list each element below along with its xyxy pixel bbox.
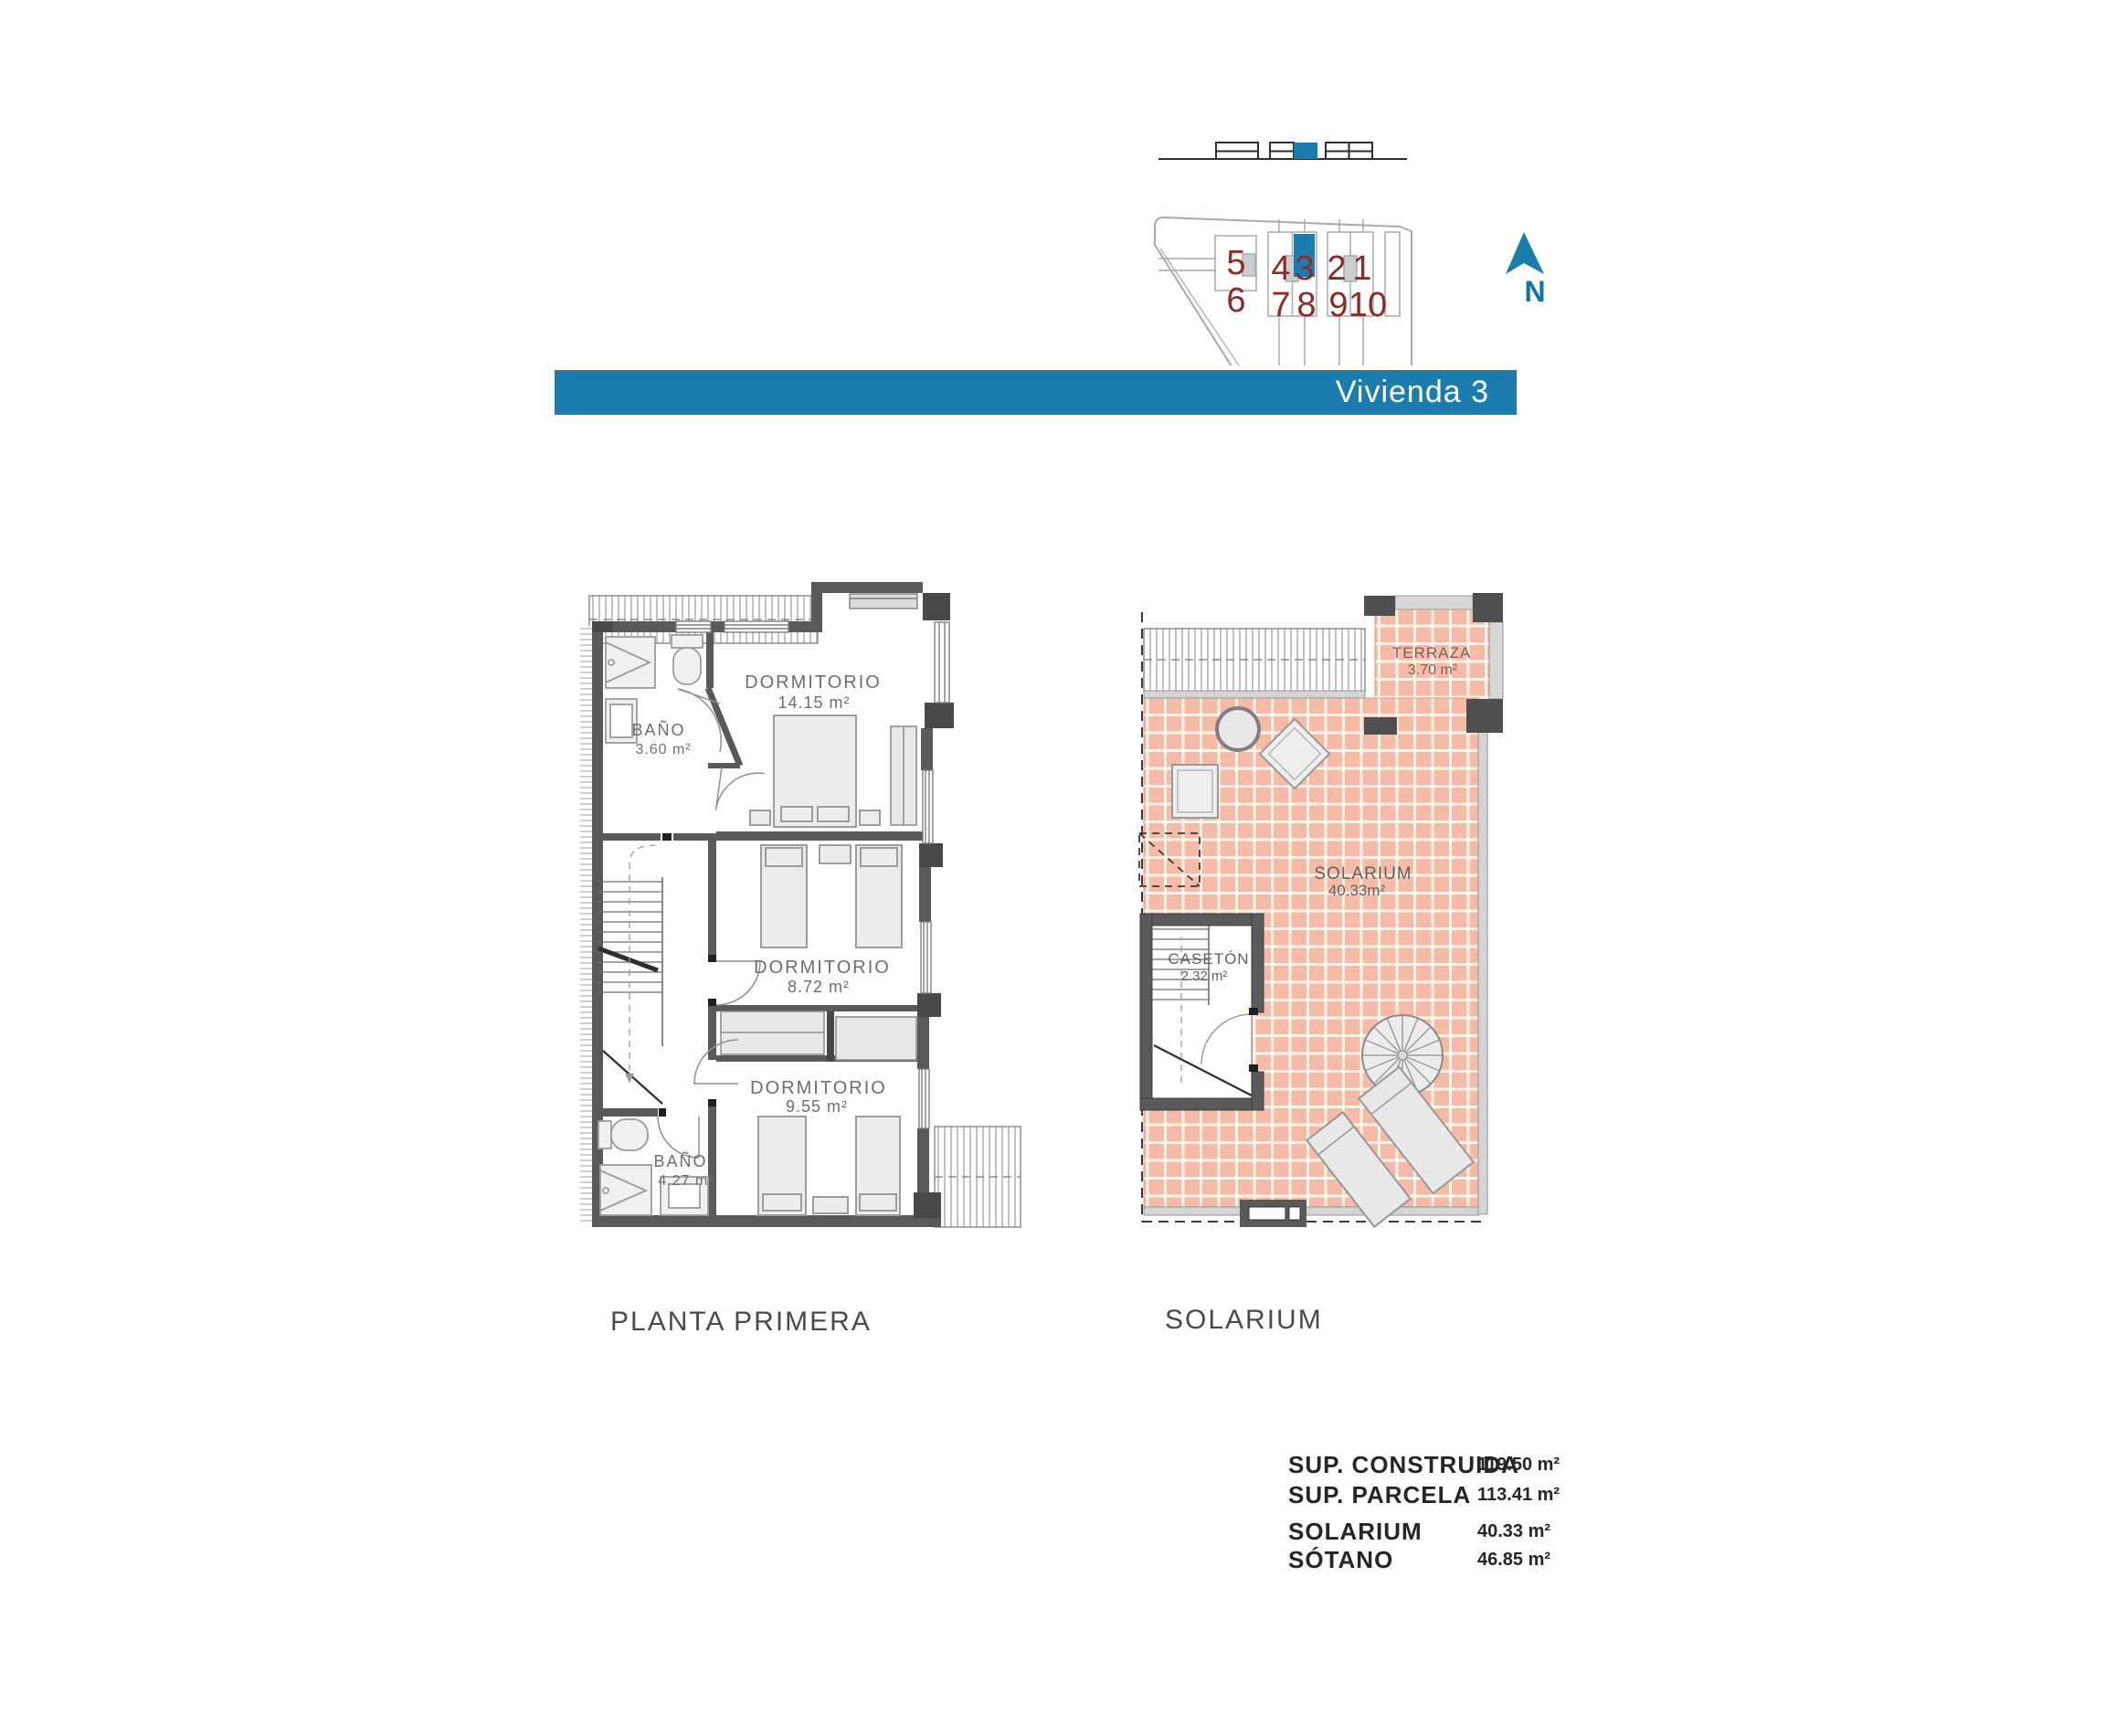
- twin-beds-872: [761, 845, 902, 947]
- sheet-title: Vivienda 3: [1336, 375, 1517, 410]
- room-name: DORMITORIO: [754, 958, 891, 978]
- planta-primera-plan: BAÑO 3.60 m² DORMITORIO 14.15 m² DORMITO…: [571, 571, 1119, 1243]
- unit-number: 4: [1271, 249, 1290, 288]
- room-area: 14.15 m²: [777, 693, 850, 712]
- unit-number: 8: [1296, 286, 1316, 324]
- summary-row-label: SOLARIUM: [1288, 1518, 1423, 1546]
- unit-number: 6: [1226, 281, 1245, 320]
- room-area: 40.33m²: [1328, 882, 1386, 899]
- north-label: N: [1524, 275, 1545, 308]
- caseton: [1140, 914, 1264, 1110]
- room-name: BAÑO: [653, 1151, 707, 1170]
- staircase: [597, 845, 662, 1104]
- caption-solarium: SOLARIUM: [1165, 1305, 1323, 1336]
- room-name: DORMITORIO: [750, 1078, 887, 1098]
- room-area: 3.70 m²: [1408, 662, 1458, 678]
- square-lounger: [1172, 765, 1218, 818]
- door-jambs: [659, 833, 716, 1117]
- north-arrow-icon: N: [1506, 232, 1546, 308]
- unit-number: 10: [1349, 286, 1387, 324]
- room-name: CASETÓN: [1168, 950, 1249, 968]
- solarium-plan: TERRAZA 3.70 m² SOLARIUM 40.33m² CASETÓN…: [1128, 571, 1585, 1243]
- site-location-plan: 5 6 4 3 2 1 7 8 9 10 N: [1133, 119, 1562, 365]
- solarium-pergola-hatch: [1144, 629, 1365, 692]
- room-name: SOLARIUM: [1314, 864, 1412, 884]
- summary-row-value: 40.33 m²: [1477, 1521, 1550, 1542]
- room-name: BAÑO: [631, 720, 685, 739]
- room-area: 8.72 m²: [788, 978, 850, 996]
- insulation-hatch: [580, 626, 592, 1224]
- room-area: 4.27 m²: [658, 1173, 714, 1189]
- summary-row-label: SUP. PARCELA: [1288, 1481, 1471, 1509]
- room-area: 3.60 m²: [635, 742, 691, 757]
- round-table: [1217, 708, 1259, 750]
- twin-beds-955: [758, 1117, 900, 1215]
- summary-row-label: SÓTANO: [1288, 1546, 1393, 1574]
- plan-sheet: 5 6 4 3 2 1 7 8 9 10 N Vivienda 3: [0, 0, 2105, 1736]
- room-name: TERRAZA: [1392, 644, 1471, 662]
- summary-row-value: 46.85 m²: [1477, 1550, 1550, 1571]
- room-area: 9.55 m²: [786, 1097, 848, 1116]
- room-area: 2.32 m²: [1181, 969, 1228, 984]
- elevation-strip: [1158, 143, 1407, 159]
- unit-number: 2: [1327, 249, 1346, 288]
- angled-wall: [708, 688, 740, 766]
- unit-number: 5: [1226, 244, 1245, 282]
- title-bar: Vivienda 3: [555, 370, 1517, 415]
- summary-row-value: 113.41 m²: [1477, 1485, 1560, 1506]
- unit-number: 3: [1295, 249, 1314, 288]
- unit-number: 7: [1271, 286, 1290, 324]
- vent-block: [1240, 1200, 1306, 1227]
- double-bed: [750, 715, 880, 827]
- elevation-highlighted-unit: [1294, 143, 1317, 159]
- unit-number: 9: [1328, 286, 1348, 324]
- unit-number: 1: [1352, 249, 1371, 288]
- room-name: DORMITORIO: [745, 672, 882, 693]
- summary-row-value: 119.50 m²: [1477, 1455, 1560, 1476]
- caption-planta-primera: PLANTA PRIMERA: [610, 1307, 872, 1338]
